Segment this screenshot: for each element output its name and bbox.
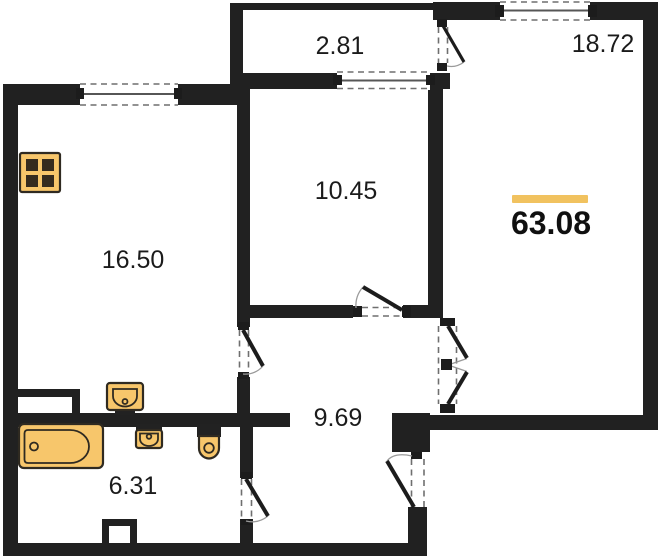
wall-niche-right — [72, 389, 80, 415]
wall-entry-corner-block — [392, 413, 430, 452]
wall-bottom-right — [392, 415, 658, 430]
kitchen-sink-icon — [107, 383, 143, 415]
area-label-balcony: 2.81 — [316, 32, 365, 60]
floor-plan-canvas: 63.08 2.81 18.72 10.45 16.50 9.69 6.31 — [0, 0, 661, 560]
washbasin-icon — [136, 424, 162, 448]
window-middle-room — [333, 71, 435, 90]
wall-niche-top — [18, 389, 80, 397]
window-left-room — [76, 83, 182, 107]
area-label-bathroom: 6.31 — [109, 472, 158, 500]
bathtub-icon — [19, 424, 103, 468]
door-handle-block — [441, 359, 452, 370]
total-area-accent-bar — [512, 195, 588, 203]
toilet-icon — [197, 424, 221, 459]
wall-mid-left-upper — [237, 103, 250, 327]
wall-bathroom-right-upper — [240, 427, 253, 478]
wall-outer-bottom — [3, 543, 427, 556]
door-entrance — [387, 452, 424, 507]
door-double-right-room — [439, 318, 468, 413]
wall-middle-room-bottom-left — [250, 305, 353, 318]
area-label-right-room: 18.72 — [572, 30, 635, 58]
door-left-room — [238, 322, 263, 379]
door-bathroom — [241, 472, 268, 525]
wall-outer-left — [3, 84, 18, 556]
wall-mid-right — [428, 73, 443, 318]
door-middle-room — [353, 287, 411, 317]
window-right-room — [495, 1, 597, 20]
door-balcony — [437, 19, 464, 71]
stove-icon — [20, 153, 60, 192]
wall-balcony-top — [230, 3, 447, 10]
duct-shaft-inner — [109, 526, 130, 543]
floor-plan: 63.08 2.81 18.72 10.45 16.50 9.69 6.31 — [0, 0, 661, 560]
area-label-left-room: 16.50 — [102, 246, 165, 274]
total-area-label: 63.08 — [511, 205, 591, 241]
area-label-hallway: 9.69 — [314, 404, 363, 432]
wall-mid-left-lower — [237, 377, 250, 415]
wall-outer-right — [643, 2, 658, 430]
area-label-middle-room: 10.45 — [315, 177, 378, 205]
